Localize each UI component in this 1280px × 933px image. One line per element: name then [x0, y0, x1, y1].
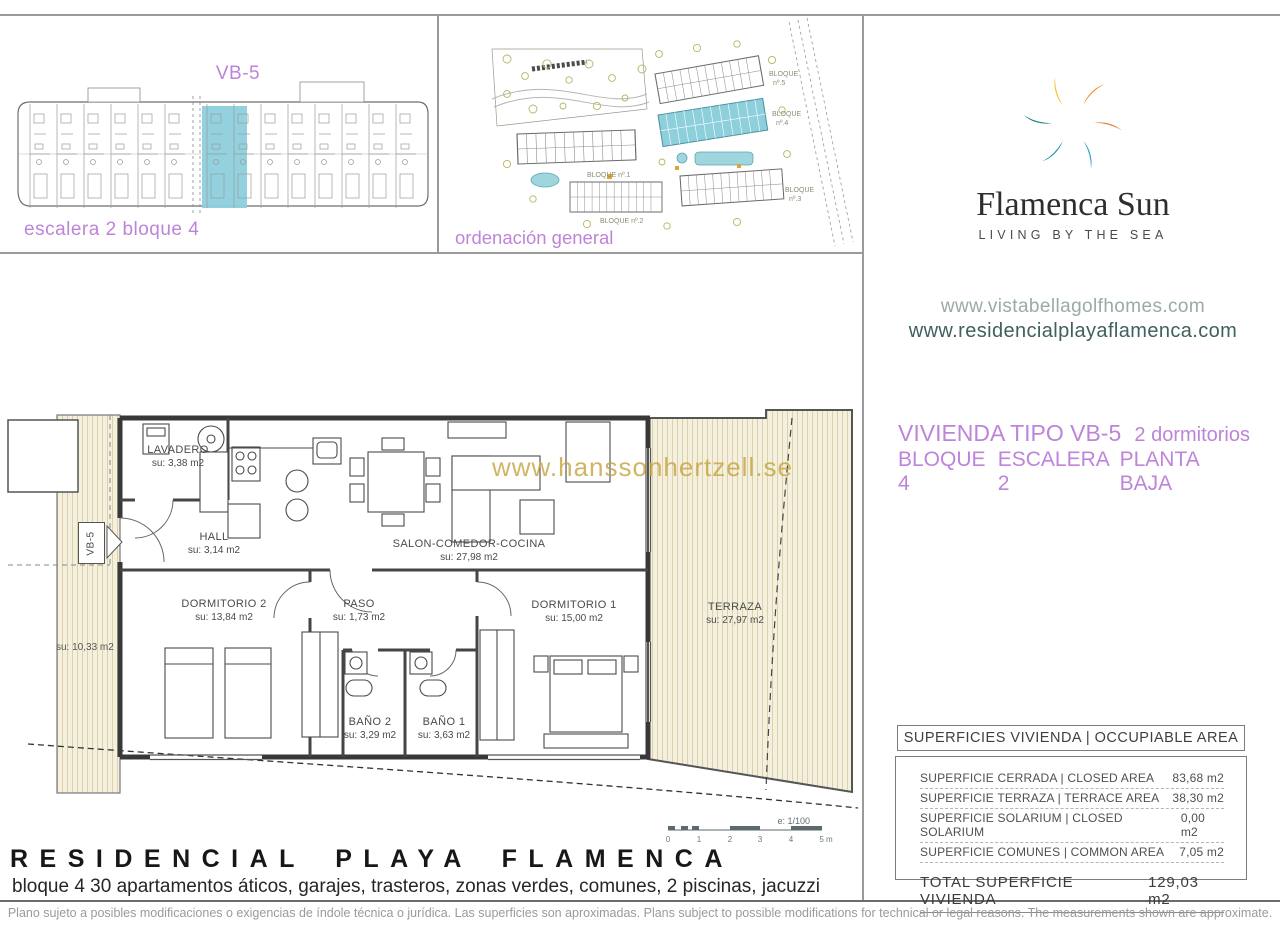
- building-elevation-drawing: [0, 14, 437, 252]
- row-label: SUPERFICIE SOLARIUM | CLOSED SOLARIUM: [920, 811, 1181, 839]
- row-value: 38,30 m2: [1172, 791, 1224, 805]
- row-label: SUPERFICIE CERRADA | CLOSED AREA: [920, 771, 1154, 785]
- room-label-dormitorio-2: DORMITORIO 2 su: 13,84 m2: [144, 598, 304, 624]
- unit-block: BLOQUE 4: [898, 448, 998, 496]
- table-row: SUPERFICIE CERRADA | CLOSED AREA 83,68 m…: [920, 769, 1224, 789]
- sun-swirl-icon: [1017, 67, 1130, 180]
- website-link-1[interactable]: www.vistabellagolfhomes.com: [880, 296, 1266, 318]
- areas-table: SUPERFICIE CERRADA | CLOSED AREA 83,68 m…: [895, 756, 1247, 880]
- scale-bar: e: 1/100 0 1 2 3 4 5 m: [666, 816, 833, 844]
- room-label-lavadero: LAVADERO su: 3,38 m2: [118, 444, 238, 470]
- svg-text:BLOQUE: BLOQUE: [772, 111, 802, 118]
- highlighted-unit: [202, 106, 247, 208]
- unit-type: VIVIENDA TIPO VB-5: [898, 420, 1121, 447]
- room-label-bano-1: BAÑO 1 su: 3,63 m2: [384, 716, 504, 742]
- side-strip: [8, 415, 122, 793]
- floor-plan-drawing: e: 1/100 0 1 2 3 4 5 m: [0, 252, 862, 900]
- row-value: 7,05 m2: [1179, 845, 1224, 859]
- room-label-salon: SALON-COMEDOR-COCINA su: 27,98 m2: [369, 538, 569, 564]
- residencial-title: RESIDENCIAL PLAYA FLAMENCA: [10, 845, 734, 874]
- site-block-4-highlight: [658, 98, 768, 146]
- svg-text:nº.5: nº.5: [773, 80, 785, 87]
- watermark: www.hanssonhertzell.se: [492, 452, 793, 483]
- unit-heading-line2: BLOQUE 4 ESCALERA 2 PLANTA BAJA: [898, 448, 1250, 496]
- siteplan-caption: ordenación general: [455, 227, 613, 249]
- unit-heading-line1: VIVIENDA TIPO VB-5 2 dormitorios: [898, 420, 1250, 447]
- svg-text:2: 2: [728, 835, 733, 844]
- svg-text:e: 1/100: e: 1/100: [777, 816, 810, 826]
- room-label-terraza: TERRAZA su: 27,97 m2: [675, 601, 795, 627]
- residencial-subtitle: bloque 4 30 apartamentos áticos, garajes…: [12, 876, 820, 898]
- row-label: SUPERFICIE TERRAZA | TERRACE AREA: [920, 791, 1159, 805]
- svg-text:BLOQUE nº.2: BLOQUE nº.2: [600, 218, 644, 225]
- svg-text:5 m: 5 m: [819, 835, 833, 844]
- svg-text:1: 1: [697, 835, 702, 844]
- total-label: TOTAL SUPERFICIE VIVIENDA: [920, 874, 1148, 908]
- row-label: SUPERFICIE COMUNES | COMMON AREA: [920, 845, 1164, 859]
- side-area-label: su: 10,33 m2: [56, 642, 114, 653]
- road-edge: [789, 18, 853, 246]
- table-row: SUPERFICIE SOLARIUM | CLOSED SOLARIUM 0,…: [920, 809, 1224, 843]
- table-row: SUPERFICIE TERRAZA | TERRACE AREA 38,30 …: [920, 789, 1224, 809]
- brand-tagline: LIVING BY THE SEA: [923, 228, 1223, 242]
- svg-text:BLOQUE nº.1: BLOQUE nº.1: [587, 172, 631, 179]
- total-value: 129,03 m2: [1148, 874, 1224, 908]
- room-label-hall: HALL su: 3,14 m2: [154, 531, 274, 557]
- elevation-caption: escalera 2 bloque 4: [24, 219, 199, 241]
- svg-text:0: 0: [666, 835, 671, 844]
- website-link-2[interactable]: www.residencialplayaflamenca.com: [880, 320, 1266, 343]
- room-label-paso: PASO su: 1,73 m2: [299, 598, 419, 624]
- divider-right-column: [862, 14, 864, 901]
- svg-text:nº.3: nº.3: [789, 196, 801, 203]
- flamenca-sun-logo: [1013, 63, 1133, 183]
- svg-text:nº.4: nº.4: [776, 120, 788, 127]
- svg-text:BLOQUE: BLOQUE: [785, 187, 815, 194]
- brand-name: Flamenca Sun: [923, 186, 1223, 224]
- table-row: SUPERFICIE COMUNES | COMMON AREA 7,05 m2: [920, 843, 1224, 863]
- green-zone: [492, 49, 649, 126]
- svg-text:BLOQUE: BLOQUE: [769, 71, 799, 78]
- row-value: 83,68 m2: [1172, 771, 1224, 785]
- room-label-dormitorio-1: DORMITORIO 1 su: 15,00 m2: [494, 599, 654, 625]
- svg-text:3: 3: [758, 835, 763, 844]
- disclaimer-text: Plano sujeto a posibles modificaciones o…: [0, 906, 1280, 920]
- row-value: 0,00 m2: [1181, 811, 1224, 839]
- site-plan-drawing: BLOQUE nº.5 BLOQUE nº.4 BLOQUE nº.3 BLOQ…: [437, 14, 862, 252]
- unit-floor: PLANTA BAJA: [1120, 448, 1250, 496]
- areas-table-header: SUPERFICIES VIVIENDA | OCCUPIABLE AREA: [897, 725, 1245, 751]
- unit-tag: VB-5: [78, 522, 105, 564]
- unit-bedrooms: 2 dormitorios: [1134, 424, 1250, 447]
- svg-text:4: 4: [789, 835, 794, 844]
- unit-stair: ESCALERA 2: [998, 448, 1120, 496]
